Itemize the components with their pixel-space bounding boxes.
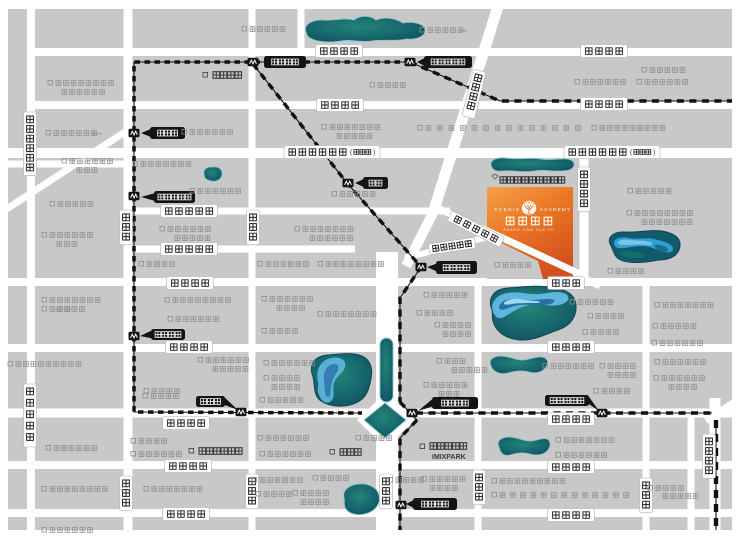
svg-text:): ): [373, 149, 375, 156]
svg-text:mall: mall: [459, 28, 467, 33]
svg-text:SHANG JING XUE FU: SHANG JING XUE FU: [503, 228, 554, 232]
svg-text:): ): [653, 149, 655, 156]
svg-text:ACADEMY: ACADEMY: [540, 207, 571, 212]
svg-text:SCENIC: SCENIC: [494, 207, 521, 212]
svg-text:MEM: MEM: [92, 131, 102, 136]
svg-text:IMIXPARK: IMIXPARK: [432, 454, 466, 461]
